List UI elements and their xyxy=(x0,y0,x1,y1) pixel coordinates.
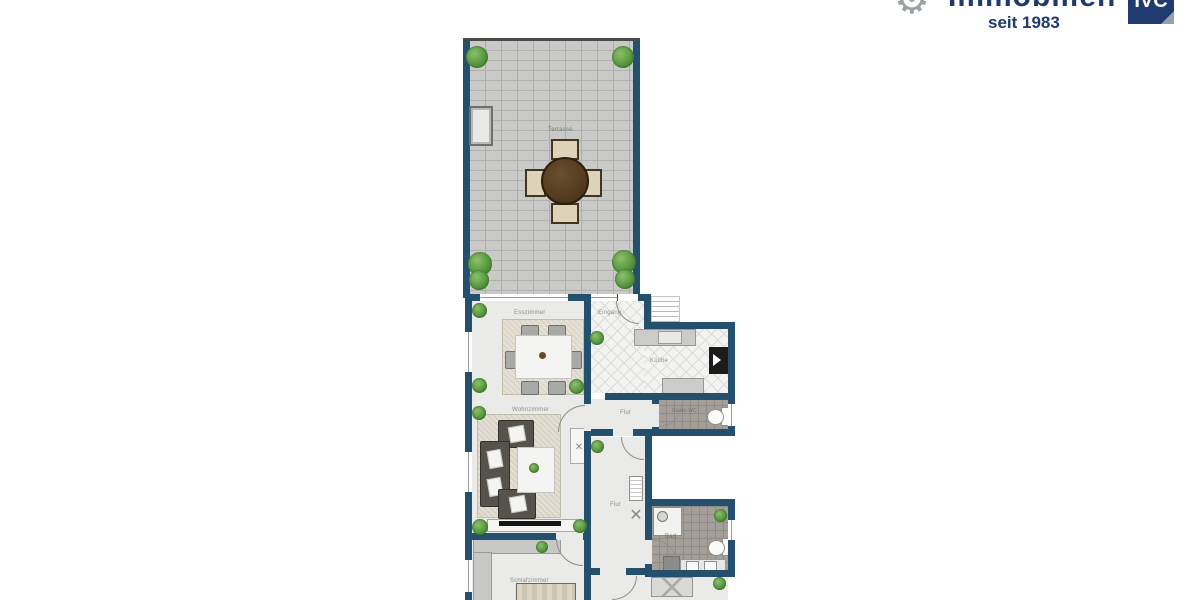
room-label-eingang: Eingang xyxy=(598,310,621,316)
dining-chair xyxy=(548,381,566,395)
door-opening xyxy=(652,404,659,427)
door-opening xyxy=(584,404,591,431)
wall xyxy=(644,322,735,329)
window xyxy=(728,520,735,540)
plant-icon xyxy=(536,541,548,553)
plant-icon xyxy=(573,519,587,533)
bed xyxy=(516,583,576,600)
wall xyxy=(463,38,640,41)
floorplan-page: ⚙ Immobilien IVC seit 1983 xyxy=(0,0,1200,600)
wall xyxy=(645,499,735,506)
agency-logo: ⚙ Immobilien IVC seit 1983 xyxy=(880,0,1200,50)
brand-name: Immobilien xyxy=(948,0,1116,12)
rack-cross-icon: ✕ xyxy=(629,507,642,524)
room-label-terrasse: Terrasse xyxy=(548,127,573,133)
room-label-esszimmer: Esszimmer xyxy=(514,310,545,316)
terrace-planter xyxy=(469,106,493,146)
door-opening xyxy=(613,429,633,436)
plant-icon xyxy=(612,46,634,68)
pillow xyxy=(487,449,504,469)
badge-fold-corner-icon xyxy=(1161,11,1174,24)
hall-sideboard xyxy=(629,476,643,501)
window xyxy=(480,294,568,301)
table-centerpiece xyxy=(539,352,546,359)
window xyxy=(465,560,472,592)
window xyxy=(465,332,472,372)
shower-head-icon xyxy=(657,511,668,522)
wall xyxy=(605,393,735,400)
plant-icon xyxy=(713,577,726,590)
door-opening xyxy=(645,540,652,564)
plant-icon xyxy=(472,519,488,535)
tv xyxy=(499,521,561,526)
plant-icon xyxy=(472,406,486,420)
brand-tagline: seit 1983 xyxy=(988,14,1060,31)
room-label-flur: Flur xyxy=(610,502,621,508)
wall xyxy=(645,570,735,577)
plant-icon xyxy=(569,379,584,394)
dining-chair xyxy=(521,381,539,395)
room-label-kueche: Küche xyxy=(650,358,668,364)
wall xyxy=(645,429,652,506)
window xyxy=(728,404,735,426)
window xyxy=(591,294,617,301)
pillow xyxy=(509,495,528,514)
plant-icon xyxy=(469,270,489,290)
plant-icon xyxy=(714,509,727,522)
door-opening xyxy=(618,294,638,301)
plant-icon xyxy=(466,46,488,68)
toilet xyxy=(708,540,725,556)
gear-icon: ⚙ xyxy=(894,0,930,20)
terrace-table xyxy=(541,157,589,205)
armchair xyxy=(498,489,536,519)
wall xyxy=(645,429,735,436)
room-label-gaeste-wc: Gäste-WC xyxy=(672,408,697,414)
room-label-schlafzimmer: Schlafzimmer xyxy=(510,578,549,584)
plant-icon xyxy=(472,378,487,393)
shelf-cross-icon: ✕ xyxy=(575,442,583,453)
brand-badge: IVC xyxy=(1128,0,1174,24)
appliance-door-icon xyxy=(713,354,721,366)
door-opening xyxy=(600,568,626,575)
plant-icon xyxy=(615,269,635,289)
plant-icon xyxy=(591,440,604,453)
terrace-chair xyxy=(551,203,579,224)
pillow xyxy=(508,425,527,444)
toilet xyxy=(707,409,724,425)
plant-icon xyxy=(529,463,539,473)
room-label-bad: Bad xyxy=(665,534,676,540)
kitchen-appliance xyxy=(709,347,728,374)
plant-icon xyxy=(590,331,604,345)
kitchen-sink xyxy=(658,331,682,344)
dresser xyxy=(651,577,693,597)
shower xyxy=(653,507,682,536)
room-label-flur-top: Flur xyxy=(620,410,631,416)
room-label-wohnzimmer: Wohnzimmer xyxy=(512,407,549,413)
plant-icon xyxy=(472,303,487,318)
hall-rack: ✕ xyxy=(626,504,646,528)
wardrobe xyxy=(473,552,492,600)
window xyxy=(465,452,472,492)
